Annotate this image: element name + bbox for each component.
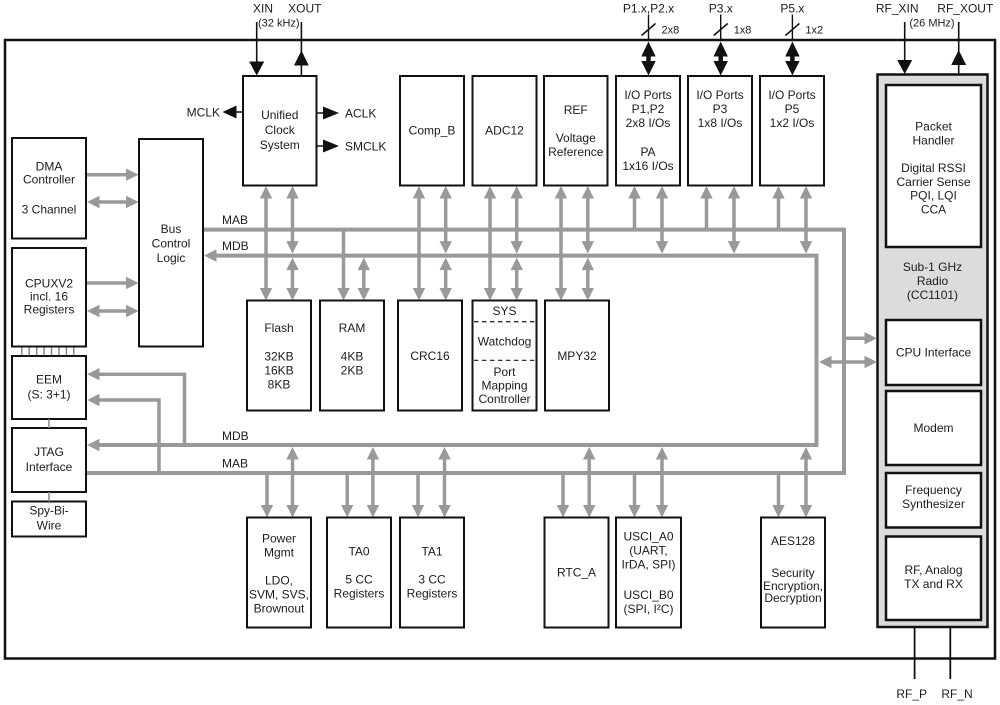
svg-text:(CC1101): (CC1101) — [907, 288, 958, 302]
svg-text:32KB: 32KB — [264, 350, 293, 364]
svg-text:Controller: Controller — [23, 173, 75, 187]
svg-text:1x8 I/Os: 1x8 I/Os — [698, 116, 743, 130]
svg-text:Voltage: Voltage — [556, 131, 596, 145]
svg-text:USCI_B0: USCI_B0 — [623, 588, 673, 602]
svg-text:2x8 I/Os: 2x8 I/Os — [626, 116, 671, 130]
svg-text:REF: REF — [564, 103, 588, 117]
svg-text:5 CC: 5 CC — [345, 573, 373, 587]
svg-text:Port: Port — [493, 365, 516, 379]
svg-text:Control: Control — [152, 237, 191, 251]
svg-text:CCA: CCA — [921, 202, 946, 216]
svg-text:P1,P2: P1,P2 — [632, 102, 665, 116]
svg-text:MCLK: MCLK — [187, 105, 220, 119]
svg-text:ADC12: ADC12 — [485, 124, 524, 138]
svg-text:MAB: MAB — [222, 213, 248, 227]
svg-text:4KB: 4KB — [341, 350, 364, 364]
svg-text:Decryption: Decryption — [764, 591, 821, 605]
svg-text:(UART,: (UART, — [629, 544, 667, 558]
svg-text:ACLK: ACLK — [345, 106, 376, 120]
svg-text:P3.x: P3.x — [709, 2, 733, 16]
svg-text:Carrier Sense: Carrier Sense — [896, 175, 970, 189]
svg-text:EEM: EEM — [36, 373, 62, 387]
svg-text:(S: 3+1): (S: 3+1) — [27, 388, 70, 402]
svg-text:8KB: 8KB — [268, 378, 291, 392]
svg-text:I/O Ports: I/O Ports — [624, 88, 671, 102]
svg-text:Brownout: Brownout — [254, 602, 305, 616]
svg-text:Clock: Clock — [265, 123, 296, 137]
svg-text:MPY32: MPY32 — [557, 349, 597, 363]
svg-text:Logic: Logic — [157, 251, 186, 265]
svg-text:RF, Analog: RF, Analog — [904, 563, 962, 577]
svg-text:Flash: Flash — [264, 321, 293, 335]
svg-text:Packet: Packet — [915, 120, 952, 134]
svg-text:P3: P3 — [713, 102, 728, 116]
svg-text:RF_P: RF_P — [896, 687, 927, 701]
svg-text:CRC16: CRC16 — [410, 349, 450, 363]
svg-text:RF_XOUT: RF_XOUT — [937, 2, 994, 16]
svg-text:3 Channel: 3 Channel — [22, 203, 77, 217]
svg-text:RF_N: RF_N — [941, 687, 972, 701]
svg-text:Sub-1 GHz: Sub-1 GHz — [903, 260, 962, 274]
svg-text:P5.x: P5.x — [780, 2, 804, 16]
svg-text:TA1: TA1 — [421, 545, 442, 559]
svg-text:MDB: MDB — [222, 239, 249, 253]
svg-text:LDO,: LDO, — [265, 574, 293, 588]
svg-text:incl. 16: incl. 16 — [30, 290, 68, 304]
svg-text:I/O Ports: I/O Ports — [696, 88, 743, 102]
svg-text:Wire: Wire — [37, 519, 62, 533]
svg-text:Registers: Registers — [24, 303, 75, 317]
svg-text:Unified: Unified — [261, 108, 298, 122]
svg-text:(32 kHz): (32 kHz) — [258, 17, 300, 29]
svg-text:P1.x,P2.x: P1.x,P2.x — [623, 2, 674, 16]
svg-text:Digital RSSI: Digital RSSI — [901, 161, 966, 175]
svg-text:1x16 I/Os: 1x16 I/Os — [622, 159, 673, 173]
svg-text:Mgmt: Mgmt — [264, 546, 295, 560]
svg-text:Registers: Registers — [334, 587, 385, 601]
svg-text:XOUT: XOUT — [288, 2, 322, 16]
svg-text:Frequency: Frequency — [905, 483, 962, 497]
svg-text:Registers: Registers — [407, 587, 458, 601]
svg-text:(SPI, I²C): (SPI, I²C) — [624, 602, 674, 616]
svg-text:3 CC: 3 CC — [418, 573, 446, 587]
svg-text:P5: P5 — [785, 102, 800, 116]
svg-text:AES128: AES128 — [771, 534, 815, 548]
svg-text:System: System — [260, 138, 300, 152]
svg-text:USCI_A0: USCI_A0 — [623, 530, 673, 544]
svg-text:DMA: DMA — [36, 160, 63, 174]
svg-text:RAM: RAM — [339, 321, 366, 335]
svg-text:Bus: Bus — [161, 222, 182, 236]
svg-text:Synthesizer: Synthesizer — [902, 497, 965, 511]
svg-text:1x2: 1x2 — [805, 24, 823, 36]
svg-text:MAB: MAB — [222, 457, 248, 471]
svg-text:2KB: 2KB — [341, 364, 364, 378]
svg-text:IrDA, SPI): IrDA, SPI) — [621, 558, 675, 572]
svg-text:PQI, LQI: PQI, LQI — [910, 189, 957, 203]
svg-text:1x2 I/Os: 1x2 I/Os — [770, 116, 815, 130]
svg-text:RTC_A: RTC_A — [557, 566, 596, 580]
svg-text:CPU Interface: CPU Interface — [896, 346, 972, 360]
svg-text:Interface: Interface — [26, 460, 73, 474]
svg-text:Spy-Bi-: Spy-Bi- — [29, 504, 68, 518]
svg-text:SMCLK: SMCLK — [345, 139, 386, 153]
svg-text:2x8: 2x8 — [662, 24, 680, 36]
svg-text:CPUXV2: CPUXV2 — [25, 277, 73, 291]
svg-text:Watchdog: Watchdog — [478, 335, 532, 349]
svg-text:MDB: MDB — [222, 429, 249, 443]
svg-text:Mapping: Mapping — [481, 379, 527, 393]
svg-text:TA0: TA0 — [348, 545, 369, 559]
svg-text:I/O Ports: I/O Ports — [768, 88, 815, 102]
svg-text:JTAG: JTAG — [34, 445, 64, 459]
svg-text:XIN: XIN — [253, 2, 273, 16]
svg-text:PA: PA — [640, 145, 655, 159]
svg-text:Modem: Modem — [913, 421, 953, 435]
svg-text:RF_XIN: RF_XIN — [876, 2, 919, 16]
svg-text:16KB: 16KB — [264, 364, 293, 378]
svg-text:1x8: 1x8 — [734, 24, 752, 36]
svg-text:TX and RX: TX and RX — [904, 577, 963, 591]
svg-text:Controller: Controller — [478, 392, 530, 406]
svg-text:SYS: SYS — [492, 304, 516, 318]
svg-text:Reference: Reference — [548, 145, 604, 159]
svg-text:Power: Power — [262, 532, 296, 546]
svg-text:(26 MHz): (26 MHz) — [909, 17, 954, 29]
svg-text:Handler: Handler — [912, 134, 954, 148]
svg-text:Comp_B: Comp_B — [409, 124, 456, 138]
svg-text:SVM, SVS,: SVM, SVS, — [249, 588, 309, 602]
svg-text:Radio: Radio — [917, 274, 949, 288]
